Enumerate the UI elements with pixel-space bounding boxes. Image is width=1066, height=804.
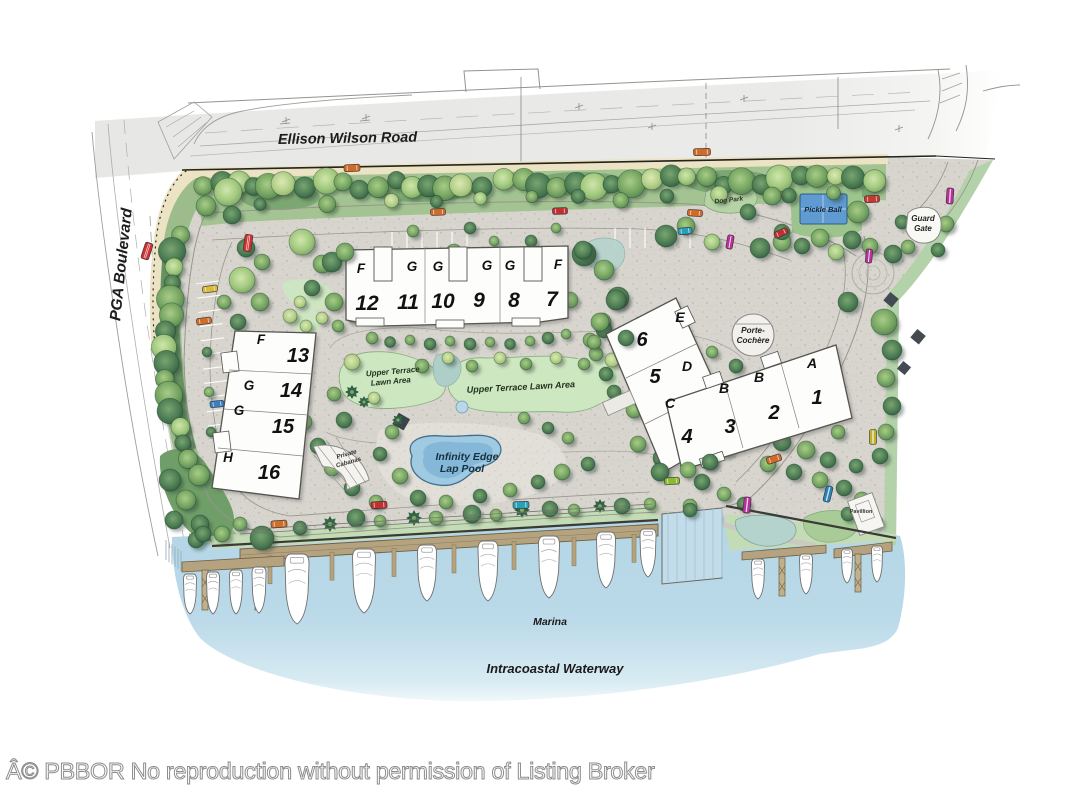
svg-text:F: F <box>554 257 563 272</box>
svg-text:11: 11 <box>397 291 419 314</box>
svg-text:9: 9 <box>473 289 485 312</box>
svg-text:10: 10 <box>431 290 455 313</box>
svg-text:Lap Pool: Lap Pool <box>440 463 485 475</box>
svg-text:F: F <box>257 332 266 347</box>
svg-text:B: B <box>754 369 764 385</box>
svg-text:G: G <box>234 403 245 418</box>
svg-text:14: 14 <box>280 380 302 402</box>
svg-text:7: 7 <box>546 288 559 311</box>
svg-text:3: 3 <box>724 416 735 438</box>
svg-text:C: C <box>665 395 676 411</box>
svg-text:E: E <box>675 309 685 325</box>
svg-text:Â© PBBOR No reproduction witho: Â© PBBOR No reproduction without permiss… <box>6 758 655 784</box>
svg-text:D: D <box>682 358 692 374</box>
svg-text:H: H <box>223 450 233 465</box>
svg-text:G: G <box>482 258 493 273</box>
svg-text:15: 15 <box>272 416 295 438</box>
svg-text:16: 16 <box>258 462 281 484</box>
svg-text:A: A <box>806 355 817 371</box>
svg-text:13: 13 <box>287 345 309 367</box>
svg-text:F: F <box>357 261 366 276</box>
svg-text:4: 4 <box>680 426 692 448</box>
svg-text:Ellison Wilson Road: Ellison Wilson Road <box>278 130 419 148</box>
svg-text:B: B <box>719 380 729 396</box>
svg-text:Intracoastal Waterway: Intracoastal Waterway <box>486 661 624 676</box>
svg-text:G: G <box>244 378 255 393</box>
svg-text:G: G <box>433 259 444 274</box>
svg-text:Pickle Ball: Pickle Ball <box>804 205 842 214</box>
svg-text:Guard: Guard <box>911 214 936 223</box>
svg-text:2: 2 <box>767 402 779 424</box>
svg-text:Gate: Gate <box>914 224 932 233</box>
svg-text:Cochère: Cochère <box>737 336 770 345</box>
svg-text:8: 8 <box>508 289 520 312</box>
svg-text:G: G <box>407 259 418 274</box>
svg-text:G: G <box>505 258 516 273</box>
svg-text:1: 1 <box>811 387 822 409</box>
svg-text:6: 6 <box>636 329 648 351</box>
svg-text:Marina: Marina <box>533 616 567 628</box>
svg-text:Porte-: Porte- <box>741 326 765 335</box>
svg-text:5: 5 <box>649 366 661 388</box>
svg-text:Pavillion: Pavillion <box>850 509 873 515</box>
svg-text:Infinity Edge: Infinity Edge <box>436 451 499 463</box>
svg-text:12: 12 <box>355 292 379 315</box>
